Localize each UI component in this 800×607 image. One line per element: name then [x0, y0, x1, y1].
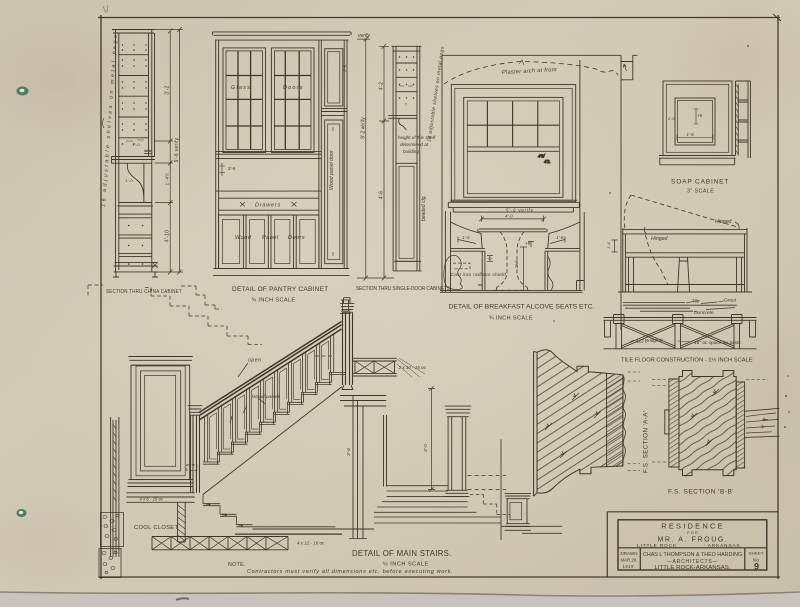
svg-text:9'-6 verify: 9'-6 verify — [174, 137, 180, 162]
svg-text:DETAIL OF PANTRY CABINET: DETAIL OF PANTRY CABINET — [232, 286, 328, 293]
svg-text:2'-0: 2'-0 — [667, 116, 675, 121]
svg-text:determined at: determined at — [400, 142, 429, 147]
svg-text:verify: verify — [358, 33, 370, 39]
svg-text:Drawers: Drawers — [255, 203, 281, 209]
svg-text:SECTION THRU SINGLE-DOOR CABIN: SECTION THRU SINGLE-DOOR CABINETS — [356, 286, 450, 292]
svg-text:Grout: Grout — [724, 298, 737, 304]
svg-text:1½: 1½ — [145, 148, 152, 153]
svg-text:2'-6: 2'-6 — [514, 260, 519, 269]
svg-text:1'-6: 1'-6 — [686, 132, 694, 137]
svg-text:MAR.28.: MAR.28. — [621, 558, 638, 563]
svg-text:DETAIL OF MAIN STAIRS.: DETAIL OF MAIN STAIRS. — [352, 549, 452, 558]
svg-text:1'-4½: 1'-4½ — [164, 173, 170, 186]
svg-text:Wood: Wood — [235, 235, 252, 241]
svg-text:1'-0: 1'-0 — [125, 178, 133, 183]
svg-text:3" SCALE: 3" SCALE — [687, 189, 714, 195]
svg-text:16" oc space for joists: 16" oc space for joists — [694, 340, 741, 346]
svg-text:CHAS L THOMPSON & THEO HARDING: CHAS L THOMPSON & THEO HARDING — [643, 552, 742, 558]
svg-text:Hinged: Hinged — [715, 219, 733, 225]
svg-text:TILE FLOOR CONSTRUCTION - 1½ I: TILE FLOOR CONSTRUCTION - 1½ INCH SCALE — [621, 357, 753, 364]
svg-text:FOR: FOR — [687, 530, 698, 535]
svg-text:4'-0: 4'-0 — [505, 214, 513, 219]
svg-text:3'-2: 3'-2 — [165, 85, 171, 94]
svg-text:Panel: Panel — [262, 235, 279, 241]
svg-text:1'-6: 1'-6 — [342, 64, 347, 72]
svg-text:Hinged: Hinged — [651, 236, 669, 242]
svg-text:SECTION THRU CHINA CABINET: SECTION THRU CHINA CABINET — [106, 289, 182, 295]
svg-text:DETAIL OF BREAKFAST ALCOVE SEA: DETAIL OF BREAKFAST ALCOVE SEATS ETC. — [449, 304, 595, 311]
svg-text:2 x 10 - 16 oc: 2 x 10 - 16 oc — [398, 365, 427, 370]
svg-text:- ARKANSAS.: - ARKANSAS. — [704, 543, 743, 549]
svg-text:3'-0: 3'-0 — [423, 444, 429, 452]
svg-text:SHEET: SHEET — [749, 551, 765, 556]
svg-text:4'2.: 4'2. — [544, 159, 551, 164]
svg-text:9'-2 verify: 9'-2 verify — [360, 117, 366, 139]
svg-text:2'-6: 2'-6 — [228, 166, 236, 171]
svg-text:1'-6: 1'-6 — [556, 235, 564, 240]
svg-text:Tile: Tile — [692, 299, 700, 305]
svg-text:4'-6: 4'-6 — [379, 191, 385, 199]
svg-text:NOTE.: NOTE. — [228, 562, 246, 568]
svg-text:1'-6: 1'-6 — [462, 235, 470, 240]
svg-text:4 x 6 - 16 oc: 4 x 6 - 16 oc — [140, 497, 164, 502]
svg-text:open: open — [248, 358, 262, 364]
svg-text:F.S. SECTION 'B-B': F.S. SECTION 'B-B' — [668, 489, 734, 496]
svg-text:building: building — [403, 149, 419, 154]
svg-text:+9: +9 — [487, 256, 492, 261]
svg-text:—ARCHITECTS—: —ARCHITECTS— — [667, 559, 719, 565]
svg-text:Glass: Glass — [231, 85, 251, 91]
svg-text:LITTLE ROCK: LITTLE ROCK — [637, 543, 677, 549]
svg-text:F.S. SECTION 'A-A': F.S. SECTION 'A-A' — [643, 411, 650, 473]
svg-text:SOAP CABINET: SOAP CABINET — [671, 179, 729, 186]
svg-text:MR. A. FROUG.: MR. A. FROUG. — [658, 537, 729, 544]
svg-text:Wood panel door: Wood panel door — [329, 150, 335, 190]
svg-text:COOL CLOSET: COOL CLOSET — [134, 525, 178, 531]
svg-text:4'-2: 4'-2 — [379, 82, 385, 90]
svg-text:4'6/: 4'6/ — [538, 154, 545, 159]
svg-text:¾ INCH SCALE: ¾ INCH SCALE — [252, 298, 296, 304]
svg-text:3'-6: 3'-6 — [346, 448, 352, 456]
svg-text:+9: +9 — [525, 241, 531, 246]
svg-text:5'-6 verify: 5'-6 verify — [506, 208, 534, 213]
svg-text:Contractors must verify all di: Contractors must verify all dimensions e… — [247, 569, 453, 575]
svg-text:LITTLE ROCK-ARKANSAS.: LITTLE ROCK-ARKANSAS. — [655, 565, 731, 571]
svg-text:Concrete.: Concrete. — [694, 310, 715, 316]
svg-text:¾ INCH SCALE: ¾ INCH SCALE — [489, 316, 533, 322]
svg-text:1'-0: 1'-0 — [132, 142, 140, 147]
svg-text:4'-10: 4'-10 — [165, 230, 171, 242]
svg-text:4 x 12 - 16 oc: 4 x 12 - 16 oc — [297, 541, 325, 546]
svg-text:Cast iron radiator shield: Cast iron radiator shield — [451, 272, 507, 278]
svg-text:Doors: Doors — [288, 235, 305, 241]
svg-text:+6: +6 — [697, 113, 703, 118]
svg-text:Doors: Doors — [283, 85, 304, 91]
svg-text:9: 9 — [754, 562, 759, 572]
svg-text:1919.: 1919. — [623, 564, 636, 569]
svg-text:beaded clg.: beaded clg. — [421, 195, 427, 221]
svg-text:DRAWN: DRAWN — [621, 551, 638, 556]
svg-text:½ INCH SCALE: ½ INCH SCALE — [383, 561, 429, 568]
svg-text:Wood panels: Wood panels — [252, 394, 281, 400]
svg-text:1'-4: 1'-4 — [606, 242, 611, 249]
